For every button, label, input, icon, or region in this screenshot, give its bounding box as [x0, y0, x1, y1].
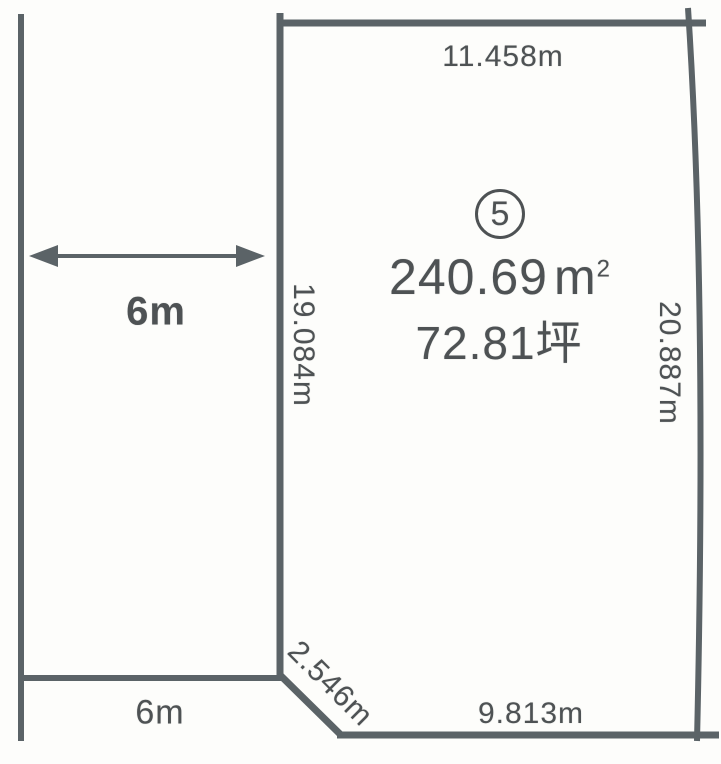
lot-area-tsubo: 72.81坪: [415, 307, 582, 373]
road-width-label: 6m: [126, 290, 186, 335]
lot-area-sqm: 240.69m2: [389, 248, 611, 306]
lot-number-badge: 5: [475, 189, 525, 239]
road-width-arrow-right-head-icon: [236, 245, 265, 267]
plot-outline-svg: [0, 0, 721, 764]
lot-area-sqm-unit: m: [554, 249, 597, 305]
lot-area-sqm-value: 240.69: [389, 249, 548, 305]
road-frontage-label: 6m: [135, 694, 184, 733]
road-width-arrow: [29, 245, 265, 267]
dimension-top-edge: 11.458m: [442, 40, 564, 74]
plot-right-edge-line: [688, 8, 700, 741]
dimension-bottom-edge: 9.813m: [478, 697, 584, 731]
road-width-arrow-left-head-icon: [29, 245, 58, 267]
dimension-left-edge: 19.084m: [286, 283, 320, 407]
dimension-right-edge: 20.887m: [652, 301, 686, 425]
land-plot-survey-diagram: 11.458m 19.084m 20.887m 9.813m 2.546m 6m…: [0, 0, 721, 764]
lot-area-sqm-exponent: 2: [597, 255, 611, 282]
lot-number: 5: [491, 195, 510, 234]
